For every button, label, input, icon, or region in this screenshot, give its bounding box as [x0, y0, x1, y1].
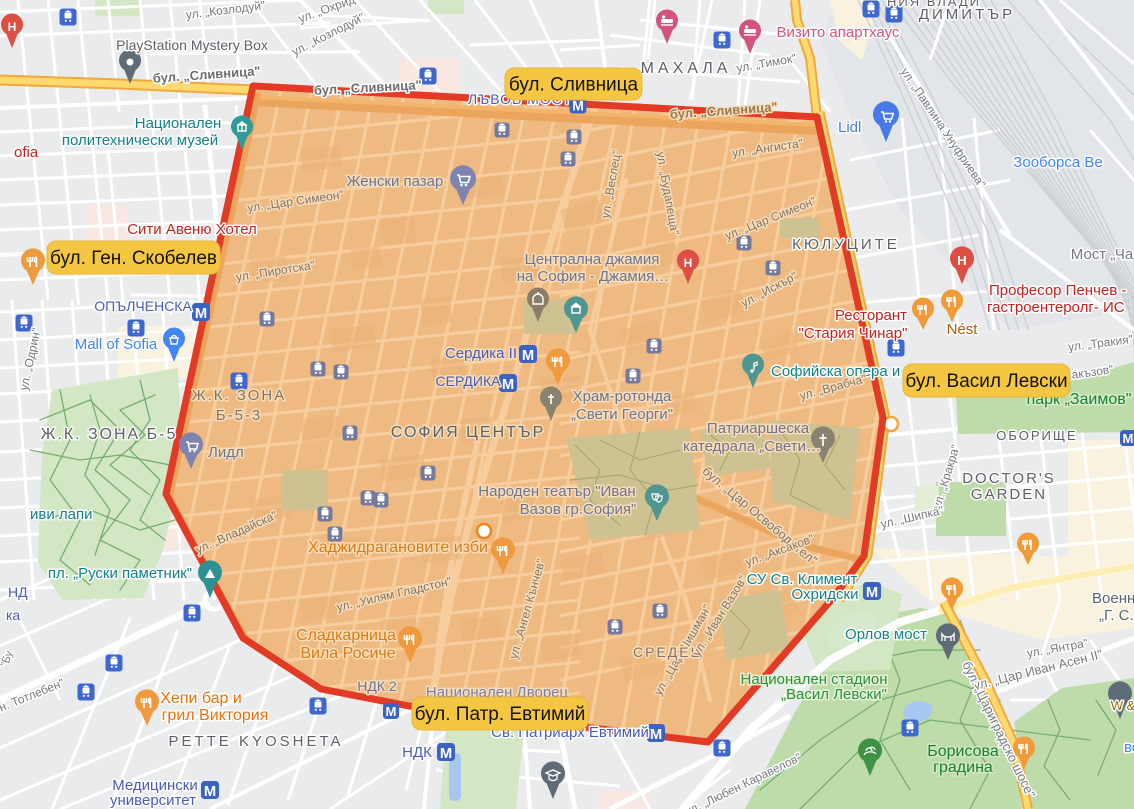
svg-text:Централна джамия: Централна джамия: [525, 251, 660, 268]
svg-text:ОБОРИЩЕ: ОБОРИЩЕ: [996, 428, 1077, 443]
svg-text:университет: университет: [110, 792, 196, 809]
svg-text:Nést: Nést: [947, 321, 979, 338]
svg-text:КЮЛУЦИТЕ: КЮЛУЦИТЕ: [792, 236, 900, 253]
svg-text:PlayStation Mystery Box: PlayStation Mystery Box: [116, 37, 268, 53]
svg-text:Сладкарница: Сладкарница: [296, 627, 396, 644]
svg-text:Сердика II: Сердика II: [445, 345, 517, 362]
svg-text:Mall of Sofia: Mall of Sofia: [75, 336, 158, 353]
svg-text:Lidl: Lidl: [838, 119, 861, 136]
svg-text:Вазов гр.София": Вазов гр.София": [520, 501, 637, 518]
svg-text:H: H: [684, 256, 693, 270]
svg-text:Охридски: Охридски: [792, 586, 859, 603]
svg-text:M: M: [386, 704, 397, 719]
svg-text:вое: вое: [1124, 739, 1134, 756]
svg-text:Визито апартхаус: Визито апартхаус: [777, 24, 900, 41]
svg-text:Хепи бар и: Хепи бар и: [160, 690, 242, 707]
svg-text:Мост „Ча: Мост „Ча: [1071, 246, 1134, 263]
svg-text:Хаджидрагановите изби: Хаджидрагановите изби: [308, 539, 488, 556]
svg-text:Професор Пенчев -: Професор Пенчев -: [989, 282, 1126, 299]
svg-text:бул. Ген. Скобелев: бул. Ген. Скобелев: [50, 248, 217, 269]
svg-text:иви лапи: иви лапи: [30, 506, 93, 523]
svg-text:Ж.К. ЗОНА: Ж.К. ЗОНА: [192, 387, 287, 404]
svg-text:катедрала „Свети…: катедрала „Свети…: [683, 438, 821, 455]
svg-text:M: M: [195, 306, 207, 322]
svg-text:МАХАЛА: МАХАЛА: [641, 60, 732, 77]
svg-text:Зооборса Ве: Зооборса Ве: [1013, 154, 1102, 171]
svg-text:„Г. С. Ра: „Г. С. Ра: [1099, 607, 1134, 624]
svg-text:градина: градина: [933, 759, 993, 776]
svg-text:Женски пазар: Женски пазар: [347, 173, 444, 190]
svg-text:M: M: [650, 727, 662, 743]
svg-text:ofia: ofia: [14, 144, 39, 161]
svg-text:бул. Васил Левски: бул. Васил Левски: [905, 371, 1067, 392]
svg-text:Борисова: Борисова: [927, 743, 999, 760]
svg-text:Вила Росиче: Вила Росиче: [300, 645, 395, 662]
svg-text:Б-5-3: Б-5-3: [216, 407, 263, 424]
svg-text:M: M: [866, 585, 878, 601]
svg-text:W &: W &: [1111, 698, 1134, 713]
svg-text:бул. Патр. Евтимий: бул. Патр. Евтимий: [415, 704, 586, 725]
svg-text:„Васил Левски": „Васил Левски": [781, 686, 887, 703]
svg-text:ДИМИТЪР: ДИМИТЪР: [919, 6, 1015, 23]
svg-text:бул. Сливница: бул. Сливница: [509, 75, 639, 96]
svg-text:Военна Ак: Военна Ак: [1092, 590, 1134, 607]
svg-text:ОПЪЛЧЕНСКА: ОПЪЛЧЕНСКА: [94, 298, 192, 314]
svg-text:на София - Джамия…: на София - Джамия…: [517, 268, 670, 285]
svg-text:политехнически музей: политехнически музей: [62, 132, 218, 149]
svg-text:M: M: [440, 746, 452, 762]
svg-text:Лидл: Лидл: [208, 444, 244, 461]
svg-text:H: H: [8, 20, 17, 34]
svg-text:Храм-ротонда: Храм-ротонда: [573, 388, 672, 405]
svg-text:Патриаршеска: Патриаршеска: [707, 420, 810, 437]
svg-text:M: M: [1123, 431, 1134, 446]
svg-text:НДК 2: НДК 2: [357, 678, 397, 694]
svg-text:"Стария Чинар": "Стария Чинар": [799, 325, 908, 342]
svg-text:Народен театър "Иван: Народен театър "Иван: [478, 483, 635, 500]
svg-text:PETTE KYOSHETA: PETTE KYOSHETA: [168, 733, 343, 750]
svg-text:НДК: НДК: [402, 744, 432, 761]
svg-text:ка: ка: [6, 607, 20, 623]
svg-text:Ж.К. ЗОНА Б-5: Ж.К. ЗОНА Б-5: [41, 426, 178, 443]
svg-text:GARDEN: GARDEN: [971, 486, 1047, 503]
svg-text:НД: НД: [8, 584, 28, 600]
svg-text:Орлов мост: Орлов мост: [845, 626, 927, 643]
svg-text:Национален: Национален: [135, 115, 222, 132]
svg-text:пл. „Руски паметник": пл. „Руски паметник": [48, 565, 192, 582]
svg-text:DOCTOR'S: DOCTOR'S: [962, 470, 1056, 487]
svg-text:M: M: [522, 348, 534, 364]
svg-text:Софийска опера и: Софийска опера и: [771, 363, 900, 380]
svg-text:гастроентеролг- ИС: гастроентеролг- ИС: [987, 299, 1125, 316]
svg-text:M: M: [502, 377, 514, 393]
svg-text:H: H: [957, 253, 966, 268]
svg-text:СОФИЯ ЦЕНТЪР: СОФИЯ ЦЕНТЪР: [391, 424, 545, 441]
svg-text:„Свети Георги": „Свети Георги": [571, 406, 673, 423]
svg-text:СЕРДИКА: СЕРДИКА: [436, 373, 502, 389]
svg-text:Сити Авеню Хотел: Сити Авеню Хотел: [127, 221, 257, 238]
svg-text:грил Виктория: грил Виктория: [162, 707, 269, 724]
svg-text:Ресторант: Ресторант: [835, 307, 907, 324]
svg-text:M: M: [204, 784, 216, 800]
